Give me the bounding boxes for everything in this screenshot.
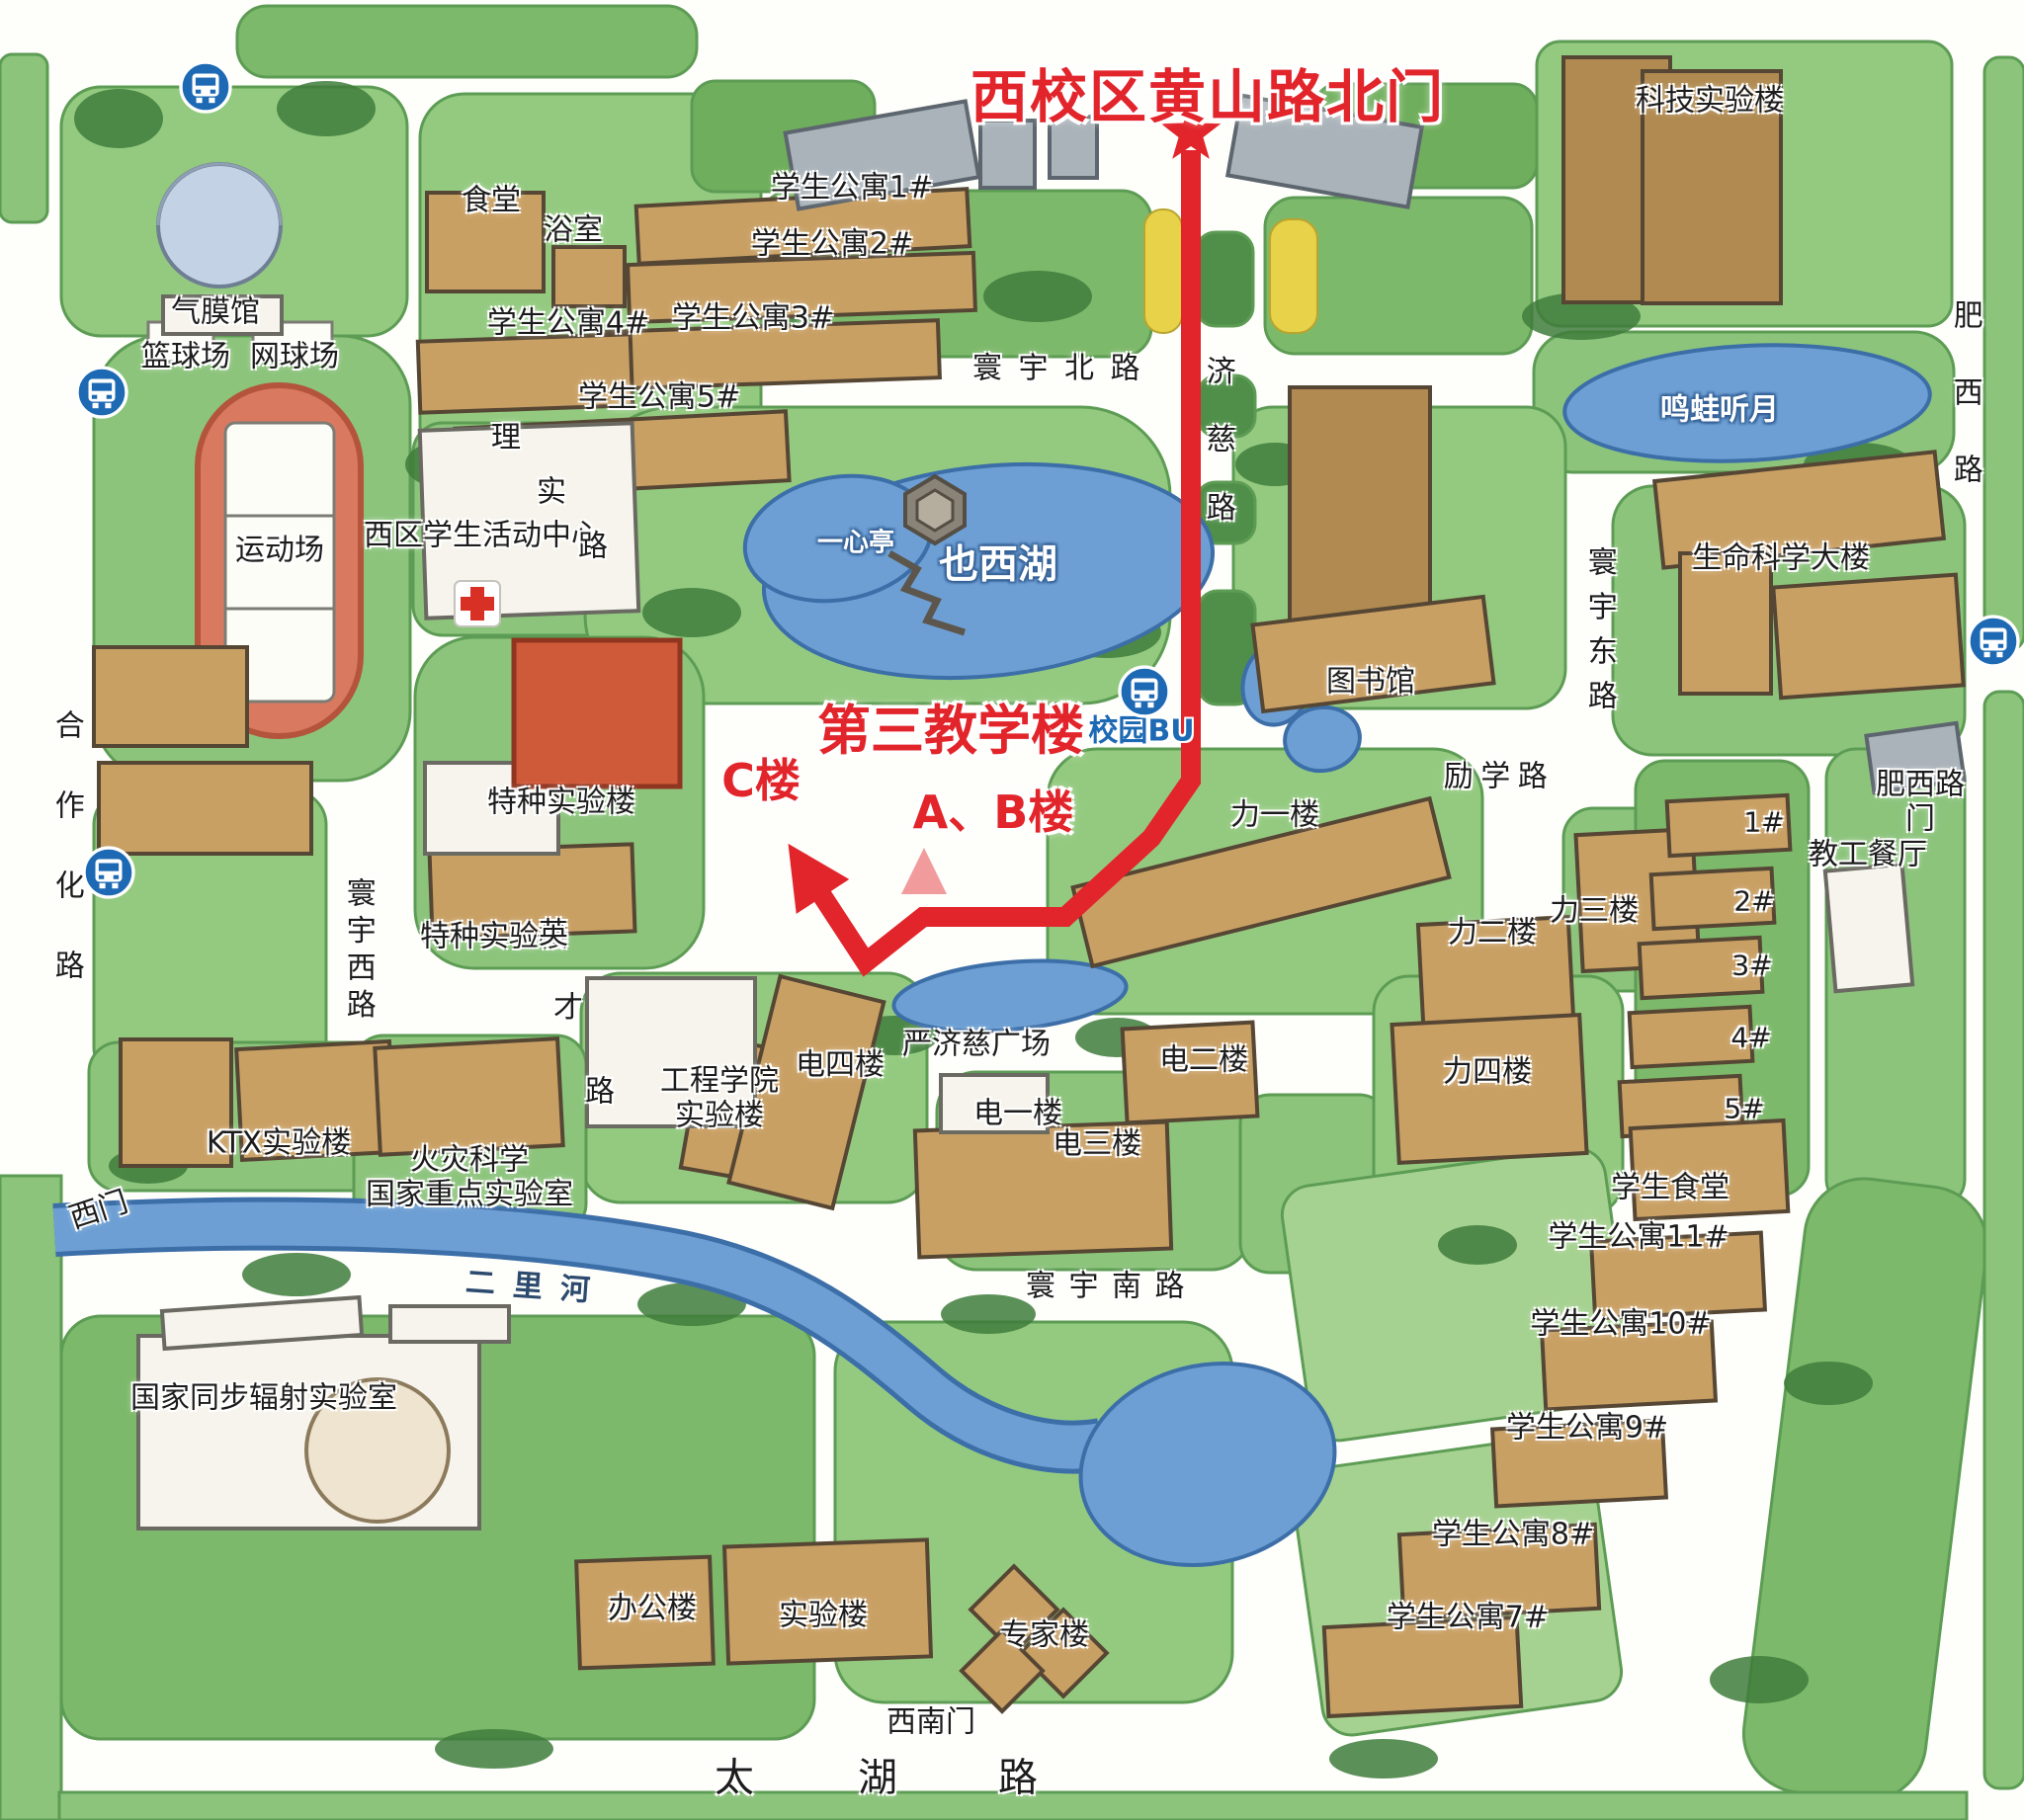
road-label: 励学路: [1444, 759, 1556, 793]
destination-label: C楼: [721, 754, 801, 807]
road-label: 肥西路: [1947, 299, 1982, 531]
building-label: 电三楼: [1053, 1126, 1141, 1161]
destination-label: A、B楼: [913, 786, 1074, 839]
road-label: 路: [998, 1755, 1038, 1801]
building-label: 学生公寓3#: [672, 300, 834, 335]
building-label: KTX实验楼: [207, 1125, 351, 1160]
building-label: 3#: [1731, 949, 1772, 981]
water-label: 也西湖: [939, 541, 1057, 588]
building-label: 图书馆: [1326, 664, 1415, 699]
page-title: 西校区黄山路北门: [970, 63, 1445, 130]
building-label: 1#: [1743, 805, 1784, 838]
building-label: 实验楼: [779, 1598, 868, 1632]
road-label: 寰宇西路: [340, 877, 375, 1026]
route-branch-arrow: [901, 848, 947, 894]
building-label: 气膜馆: [171, 294, 260, 329]
building-label: 特种实验楼: [487, 785, 635, 819]
road-label: 路: [585, 1074, 615, 1109]
water-label: 鸣蛙听月: [1660, 392, 1779, 427]
building-label: 学生公寓4#: [487, 305, 649, 340]
road-label: 寰宇北路: [972, 351, 1156, 385]
building-label: 学生食堂: [1611, 1170, 1729, 1204]
road-label: 路: [578, 529, 608, 563]
building-label: 电一楼: [973, 1096, 1062, 1130]
building-label: 生命科学大楼: [1692, 540, 1870, 575]
building-label: 电四楼: [796, 1047, 885, 1082]
bus-stop-icon: [1967, 615, 2020, 668]
building-label: 学生公寓11#: [1548, 1219, 1729, 1254]
building-label: 浴室: [544, 212, 603, 247]
road-label: 寰宇东路: [1581, 546, 1616, 724]
bus-stop-icon: [82, 846, 135, 899]
building-label: 电二楼: [1159, 1042, 1248, 1077]
orange-building: [514, 640, 680, 786]
road-label: 太: [715, 1755, 754, 1801]
building-label: 国家同步辐射实验室: [130, 1380, 397, 1415]
building-label: 学生公寓5#: [578, 379, 740, 414]
bus-stop-icon: [75, 366, 128, 419]
water-label: 一心亭: [817, 529, 894, 559]
building-label: 力三楼: [1550, 893, 1639, 928]
medical-cross-icon: [455, 581, 500, 626]
building-label: 食堂: [462, 183, 521, 217]
building-label: 西区学生活动中心: [364, 518, 601, 552]
road-label: 济慈路: [1200, 356, 1234, 560]
building-label: 学生公寓1#: [771, 170, 933, 205]
road-label: 英: [539, 916, 568, 951]
bus-stop-icon: [1118, 665, 1171, 718]
building-label: 学生公寓10#: [1530, 1306, 1711, 1341]
building-label: 4#: [1730, 1021, 1771, 1053]
destination-label: 第三教学楼: [817, 700, 1084, 763]
building-label: 力二楼: [1448, 915, 1537, 950]
building-label: 学生公寓7#: [1387, 1600, 1549, 1634]
building-label: 运动场: [235, 533, 324, 567]
building-label: 学生公寓8#: [1432, 1517, 1594, 1551]
building-label: 力四楼: [1443, 1054, 1532, 1089]
building-label: 科技实验楼: [1636, 83, 1784, 118]
map-artwork: [0, 0, 2024, 1820]
building-label: 力一楼: [1230, 797, 1319, 832]
building-label: 2#: [1733, 884, 1774, 917]
road-label: 才: [553, 990, 583, 1025]
gate-label: 西南门: [886, 1704, 975, 1739]
building-label: 工程学院 实验楼: [660, 1064, 779, 1134]
bus-stop-label: 校园BU: [1088, 713, 1194, 748]
campus-map: 西校区黄山路北门 第三教学楼C楼A、B楼食堂浴室学生公寓1#学生公寓2#学生公寓…: [0, 0, 2024, 1820]
building-label: 办公楼: [608, 1591, 697, 1625]
building-label: 教工餐厅: [1809, 837, 1927, 871]
building-label: 网球场: [250, 339, 339, 373]
road-label: 湖: [858, 1755, 897, 1801]
road-label: 理: [491, 420, 521, 455]
building-label: 学生公寓9#: [1506, 1410, 1668, 1445]
building-label: 专家楼: [1000, 1617, 1089, 1652]
road-label: 合作化路: [48, 709, 83, 1030]
building-label: 严济慈广场: [902, 1027, 1051, 1061]
road-label: 实: [537, 474, 566, 509]
building-label: 学生公寓2#: [751, 226, 913, 261]
building-label: 5#: [1724, 1092, 1764, 1124]
bus-stop-icon: [179, 60, 232, 114]
gate-label: 肥西路门: [1869, 768, 1973, 838]
building-label: 篮球场: [141, 339, 230, 373]
road-label: 寰宇南路: [1026, 1269, 1198, 1303]
building-label: 火灾科学 国家重点实验室: [366, 1143, 573, 1213]
